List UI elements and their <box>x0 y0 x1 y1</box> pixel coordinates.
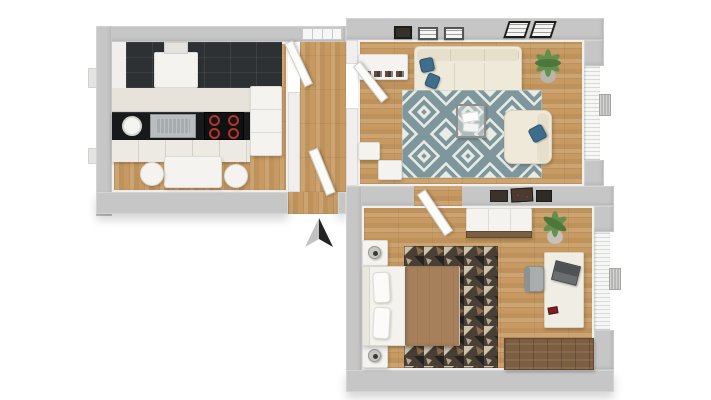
bed-blanket <box>405 266 459 346</box>
double-bed <box>362 266 460 346</box>
bedroom-south-wall <box>346 370 614 392</box>
dresser-base <box>466 231 532 238</box>
wall-frame <box>418 27 438 40</box>
desk-item-red <box>547 306 558 315</box>
counter-back <box>112 88 250 112</box>
hall-living-partition-bottom <box>346 108 358 186</box>
magazines <box>461 111 479 124</box>
kitchen-hall-partition <box>288 92 300 192</box>
bedroom-wall-art <box>490 188 554 204</box>
bed-pillow <box>372 272 391 304</box>
wall-frame <box>444 27 464 40</box>
potted-plant <box>538 208 572 248</box>
bedroom-west-wall <box>346 186 362 392</box>
floor-plan <box>0 0 711 400</box>
hallway-window <box>302 28 342 40</box>
bedroom-north-wall <box>346 186 614 206</box>
bed-pillow <box>372 307 391 340</box>
burner <box>228 115 239 126</box>
bedroom-radiator <box>609 268 621 290</box>
magazines <box>463 122 480 132</box>
sofa-pillow-blue <box>419 57 436 74</box>
living-north-wall <box>346 18 604 40</box>
bedroom-window-curtains <box>594 232 610 330</box>
dining-table <box>164 156 222 188</box>
hood-chimney <box>164 42 188 54</box>
kitchen-sink <box>150 114 196 138</box>
entrance-threshold <box>288 192 338 214</box>
bedside-lamp <box>368 246 381 259</box>
extractor-hood <box>154 52 198 88</box>
south-wall-right-stub <box>338 192 346 214</box>
bedroom-east-wall-bottom <box>594 330 614 370</box>
burner <box>209 115 220 126</box>
plate <box>122 116 142 136</box>
desk <box>544 252 584 328</box>
bedroom-east-wall-top <box>594 206 614 232</box>
south-wall <box>96 192 288 214</box>
media-cabinet <box>358 142 380 160</box>
living-window-curtains <box>584 66 600 160</box>
headboard <box>363 267 370 345</box>
media-cabinet <box>378 160 402 180</box>
laptop <box>551 260 581 286</box>
potted-plant <box>530 46 566 88</box>
living-east-wall-bottom <box>584 160 604 186</box>
dining-chair <box>224 164 248 188</box>
storage-chest <box>504 338 594 370</box>
wall-frame <box>394 26 412 39</box>
stove <box>204 112 244 140</box>
living-east-wall-top <box>584 40 604 66</box>
dresser <box>466 208 532 238</box>
kitchen-west-wall <box>96 26 112 216</box>
desk-chair <box>524 266 544 292</box>
entrance-arrow-icon <box>302 216 336 250</box>
burner <box>228 128 239 139</box>
dining-chair <box>140 162 164 186</box>
sink-bowl <box>156 119 190 133</box>
refrigerator <box>250 86 282 156</box>
kitchen-feature-wall <box>126 42 282 88</box>
coffee-table <box>456 104 486 138</box>
bedside-lamp <box>368 349 381 362</box>
burner <box>209 128 220 139</box>
kitchen-west-wall-face <box>112 42 126 88</box>
hall-living-partition-top <box>346 40 358 64</box>
living-radiator <box>599 94 611 116</box>
